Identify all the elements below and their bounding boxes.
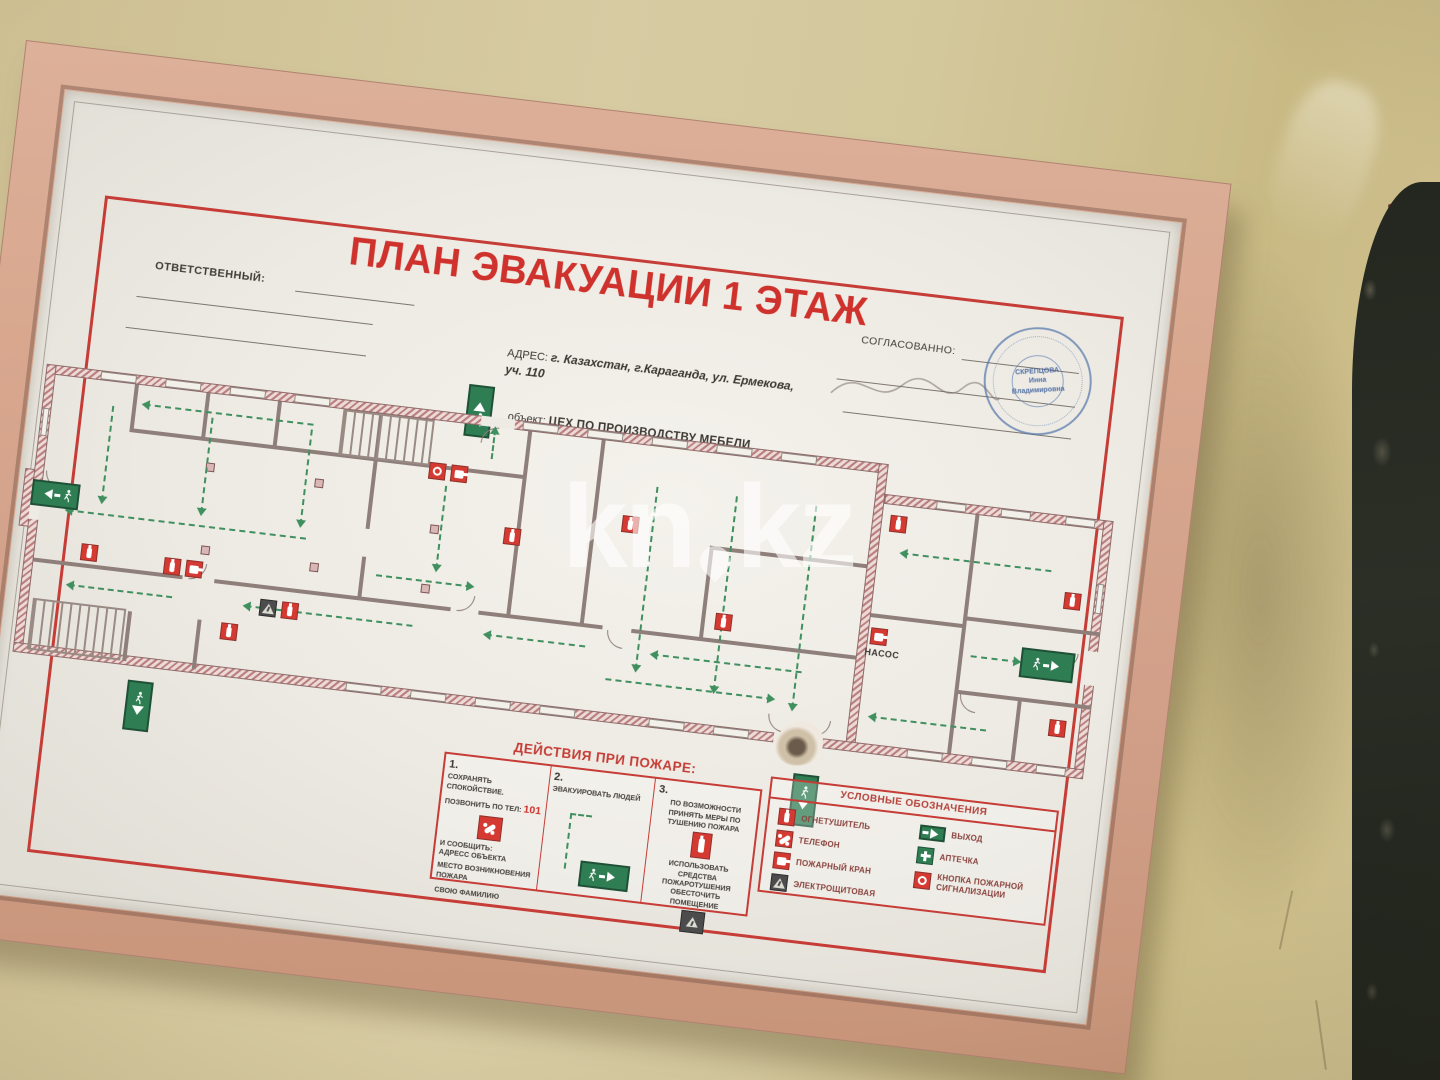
column [429,524,439,534]
fire-extinguisher-icon [503,527,522,546]
exit-sign-left [30,479,81,511]
stamp-line2: Инна [1011,375,1064,387]
dark-pipe-object [1352,182,1440,1080]
evacuation-arrow [563,813,572,869]
watermark: knkz [562,468,854,586]
fire-extinguisher-icon [280,601,299,620]
running-man-icon [61,488,73,503]
exit-sign-right [1019,647,1076,683]
fire-extinguisher-icon [777,808,796,827]
right-arrow-icon [1050,661,1064,672]
evacuation-arrow [871,716,986,732]
exit-sign-icon [577,860,630,892]
electrical-room-icon [679,910,705,935]
interior-wall [1011,701,1022,761]
wall-streak [1257,70,1392,250]
telephone-icon [775,829,794,848]
running-man-icon [587,867,599,882]
wall-crack [1315,1000,1327,1070]
interior-wall [963,616,1101,636]
interior-wall [871,613,963,628]
evacuation-arrow [300,429,313,525]
fire-extinguisher-icon [80,543,99,562]
fire-extinguisher-icon [889,515,908,534]
electrical-room-icon [258,599,277,618]
left-arrow-icon [38,488,52,499]
fire-extinguisher-icon [690,832,713,860]
stamp-line1: СКРЕПЦОВА [1011,366,1064,378]
fire-hydrant-icon [185,560,204,579]
fire-hydrant-icon [450,464,469,483]
interior-wall [357,556,366,598]
right-arrow-icon [607,872,621,883]
address-label: АДРЕС: [507,347,549,364]
electrical-room-icon [770,873,789,892]
door-arc [456,594,475,613]
fire-alarm-button-icon [428,462,447,481]
watermark-left: kn [562,468,694,586]
door-arc [605,630,624,649]
fire-extinguisher-icon [219,622,238,641]
column [200,545,210,555]
evacuation-arrow [605,678,772,700]
fire-extinguisher-icon [1063,592,1082,611]
fire-extinguisher-icon [714,613,733,632]
emergency-phone-number: 101 [523,803,542,817]
interior-wall [506,431,532,616]
wall-photo: ПЛАН ЭВАКУАЦИИ 1 ЭТАЖ ОТВЕТСТВЕННЫЙ: АДР… [0,0,1440,1080]
down-arrow-icon [130,705,144,721]
evacuation-arrow [145,404,314,426]
evacuation-arrow [486,634,586,648]
evacuation-arrow [570,813,592,818]
running-man-icon [133,690,145,705]
interior-wall [33,558,182,580]
evacuation-arrow [971,655,1019,663]
column [314,478,324,488]
staircase [27,598,126,661]
droplet-icon [694,540,736,582]
stamp-line3: Владимировна [1012,384,1065,396]
running-man-icon [1030,656,1042,671]
pump-room-label: НАСОС [864,647,900,661]
evacuation-arrow [67,509,306,539]
column [309,562,319,572]
actions-step-2: 2. ЭВАКУИРОВАТЬ ЛЮДЕЙ [536,766,656,902]
fire-hydrant-icon [772,851,791,870]
telephone-icon [477,815,504,842]
interior-wall [273,401,282,445]
actions-step-3: 3. ПО ВОЗМОЖНОСТИ ПРИНЯТЬ МЕРЫ ПО ТУШЕНИ… [641,779,761,915]
column [420,584,430,594]
fire-hydrant-icon [869,627,888,646]
first-aid-kit-icon [916,846,935,865]
watermark-right: kz [736,468,855,586]
evacuation-arrow [653,654,802,674]
fire-extinguisher-icon [1048,719,1067,738]
fire-extinguisher-icon [163,557,182,576]
fire-alarm-button-icon [913,871,932,890]
stamp-text: СКРЕПЦОВА Инна Владимировна [1011,366,1065,397]
actions-step-1: 1. СОХРАНЯТЬ СПОКОЙСТВИЕ. ПОЗВОНИТЬ ПО Т… [432,754,551,890]
interior-wall [192,619,202,669]
evacuation-arrow [902,552,1051,572]
evacuation-arrow [101,406,114,502]
exit-sign-icon [919,824,947,842]
door-arc [958,694,977,713]
interior-wall [947,515,979,754]
evacuation-arrow [69,584,173,598]
